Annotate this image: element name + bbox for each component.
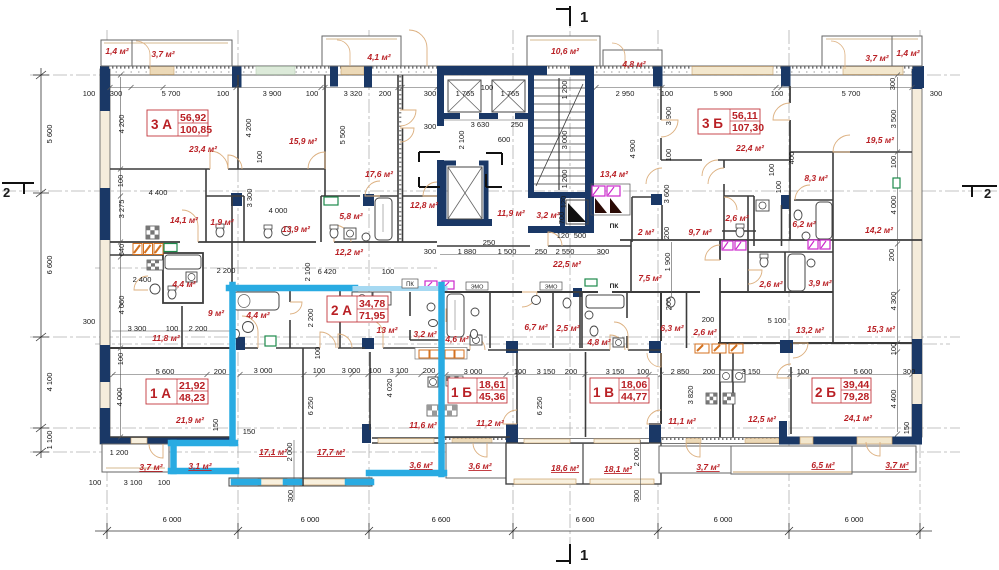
svg-text:700: 700 (557, 212, 566, 225)
svg-text:100: 100 (661, 89, 674, 98)
svg-text:18,1 м²: 18,1 м² (604, 464, 633, 474)
svg-text:ПК: ПК (610, 223, 619, 230)
svg-text:1: 1 (580, 547, 588, 564)
svg-text:3,1 м²: 3,1 м² (188, 461, 212, 471)
svg-text:400: 400 (787, 152, 796, 165)
svg-text:3,7 м²: 3,7 м² (151, 49, 175, 59)
svg-text:200: 200 (565, 367, 578, 376)
svg-text:3,9 м²: 3,9 м² (808, 278, 832, 288)
svg-text:7,5 м²: 7,5 м² (638, 273, 662, 283)
svg-text:3 150: 3 150 (606, 367, 625, 376)
svg-text:56,92: 56,92 (180, 112, 206, 124)
svg-text:11,1 м²: 11,1 м² (668, 416, 697, 426)
svg-text:300: 300 (632, 490, 641, 503)
svg-text:3,7 м²: 3,7 м² (696, 462, 720, 472)
svg-text:2,6 м²: 2,6 м² (758, 279, 783, 289)
svg-text:100: 100 (313, 347, 322, 360)
svg-text:4 060: 4 060 (117, 296, 126, 315)
svg-text:2 400: 2 400 (133, 275, 152, 284)
svg-text:250: 250 (511, 120, 524, 129)
svg-text:1 А: 1 А (150, 386, 171, 401)
svg-text:6 250: 6 250 (535, 397, 544, 416)
svg-text:3 630: 3 630 (471, 120, 490, 129)
svg-text:120: 120 (557, 231, 570, 240)
svg-text:6 000: 6 000 (163, 515, 182, 524)
svg-text:6 000: 6 000 (845, 515, 864, 524)
svg-text:13,2 м²: 13,2 м² (796, 325, 825, 335)
svg-text:3 300: 3 300 (128, 324, 147, 333)
svg-text:45,36: 45,36 (479, 391, 505, 403)
svg-text:2 200: 2 200 (306, 309, 315, 328)
svg-text:1,4 м²: 1,4 м² (896, 48, 920, 58)
svg-text:2 м²: 2 м² (637, 227, 655, 237)
svg-text:100: 100 (166, 324, 179, 333)
svg-text:3 000: 3 000 (464, 367, 483, 376)
svg-text:300: 300 (888, 78, 897, 91)
svg-text:250: 250 (535, 247, 548, 256)
svg-text:300: 300 (424, 122, 437, 131)
svg-text:14,2 м²: 14,2 м² (865, 225, 894, 235)
svg-text:10,6 м²: 10,6 м² (551, 46, 580, 56)
svg-text:100: 100 (797, 367, 810, 376)
svg-text:34,78: 34,78 (359, 298, 385, 310)
svg-text:100: 100 (889, 343, 898, 356)
svg-text:6 000: 6 000 (301, 515, 320, 524)
svg-text:2 000: 2 000 (632, 448, 641, 467)
svg-text:15,9 м²: 15,9 м² (289, 136, 318, 146)
svg-text:100: 100 (637, 367, 650, 376)
svg-text:13,4 м²: 13,4 м² (600, 169, 629, 179)
svg-text:200: 200 (887, 249, 896, 262)
svg-text:2 100: 2 100 (303, 263, 312, 282)
svg-text:2 550: 2 550 (556, 247, 575, 256)
svg-text:100: 100 (116, 353, 125, 366)
svg-text:15,3 м²: 15,3 м² (867, 324, 896, 334)
svg-text:4 000: 4 000 (269, 206, 288, 215)
svg-text:1: 1 (580, 9, 588, 26)
svg-text:100: 100 (382, 267, 395, 276)
svg-text:100: 100 (514, 367, 527, 376)
svg-text:2 200: 2 200 (189, 324, 208, 333)
svg-text:12,2 м²: 12,2 м² (335, 247, 364, 257)
svg-text:1 200: 1 200 (560, 81, 569, 100)
svg-text:100: 100 (767, 164, 776, 177)
svg-text:9 м²: 9 м² (208, 308, 225, 318)
svg-text:6,7 м²: 6,7 м² (524, 322, 548, 332)
svg-text:48,23: 48,23 (179, 392, 205, 404)
svg-text:1 200: 1 200 (560, 170, 569, 189)
svg-text:3,6 м²: 3,6 м² (409, 460, 433, 470)
svg-text:3 320: 3 320 (344, 89, 363, 98)
svg-text:4 300: 4 300 (889, 292, 898, 311)
svg-text:1 900: 1 900 (663, 253, 672, 272)
svg-text:4 400: 4 400 (889, 390, 898, 409)
svg-text:500: 500 (574, 231, 587, 240)
svg-text:300: 300 (424, 89, 437, 98)
svg-text:3 900: 3 900 (664, 107, 673, 126)
svg-text:11,6 м²: 11,6 м² (409, 420, 438, 430)
svg-text:5,8 м²: 5,8 м² (339, 211, 363, 221)
svg-text:6 600: 6 600 (432, 515, 451, 524)
svg-text:5 900: 5 900 (714, 89, 733, 98)
svg-text:5 700: 5 700 (842, 89, 861, 98)
svg-text:3 Б: 3 Б (702, 116, 723, 131)
svg-text:6 420: 6 420 (318, 267, 337, 276)
svg-text:2: 2 (984, 186, 991, 201)
svg-text:100: 100 (664, 149, 673, 162)
svg-text:21,9 м²: 21,9 м² (175, 415, 205, 425)
svg-text:200: 200 (662, 227, 671, 240)
svg-text:3 820: 3 820 (686, 386, 695, 405)
svg-text:2 100: 2 100 (457, 131, 466, 150)
svg-text:18,6 м²: 18,6 м² (551, 463, 580, 473)
svg-text:4,6 м²: 4,6 м² (444, 334, 469, 344)
svg-text:79,28: 79,28 (843, 391, 869, 403)
svg-text:1 500: 1 500 (498, 247, 517, 256)
svg-text:300: 300 (903, 367, 916, 376)
svg-text:3 А: 3 А (151, 117, 172, 132)
svg-text:2 Б: 2 Б (815, 385, 836, 400)
svg-text:11,8 м²: 11,8 м² (152, 333, 181, 343)
svg-text:11,9 м²: 11,9 м² (497, 208, 526, 218)
svg-text:1 880: 1 880 (458, 247, 477, 256)
svg-text:12,5 м²: 12,5 м² (748, 414, 777, 424)
svg-text:1 Б: 1 Б (451, 385, 472, 400)
svg-text:600: 600 (498, 135, 511, 144)
svg-text:4 400: 4 400 (149, 188, 168, 197)
svg-text:2 000: 2 000 (285, 443, 294, 462)
svg-text:6 000: 6 000 (714, 515, 733, 524)
svg-text:4 900: 4 900 (628, 140, 637, 159)
svg-text:3 000: 3 000 (560, 131, 569, 150)
svg-text:100: 100 (89, 478, 102, 487)
svg-text:107,30: 107,30 (732, 122, 764, 134)
svg-text:100: 100 (306, 89, 319, 98)
svg-text:100: 100 (83, 89, 96, 98)
svg-text:100: 100 (158, 478, 171, 487)
svg-text:3,6 м²: 3,6 м² (468, 461, 492, 471)
svg-text:300: 300 (110, 89, 123, 98)
svg-text:22,4 м²: 22,4 м² (735, 143, 765, 153)
svg-text:2 850: 2 850 (671, 367, 690, 376)
svg-text:1 В: 1 В (593, 385, 614, 400)
svg-text:ЭМО: ЭМО (471, 285, 485, 291)
svg-text:1,9 м²: 1,9 м² (210, 217, 234, 227)
svg-text:12,8 м²: 12,8 м² (410, 200, 439, 210)
svg-text:4,4 м²: 4,4 м² (171, 279, 196, 289)
svg-text:200: 200 (702, 315, 715, 324)
svg-text:3 000: 3 000 (342, 366, 361, 375)
svg-text:3,7 м²: 3,7 м² (139, 462, 163, 472)
svg-text:5 100: 5 100 (768, 316, 787, 325)
svg-text:1 765: 1 765 (456, 89, 475, 98)
svg-text:4 000: 4 000 (115, 388, 124, 407)
svg-text:17,1 м²: 17,1 м² (259, 447, 288, 457)
svg-text:8,3 м²: 8,3 м² (804, 173, 828, 183)
svg-text:300: 300 (286, 490, 295, 503)
svg-text:18,06: 18,06 (621, 379, 647, 391)
svg-text:3 150: 3 150 (742, 367, 761, 376)
svg-text:3 900: 3 900 (263, 89, 282, 98)
svg-text:300: 300 (83, 317, 96, 326)
svg-text:56,11: 56,11 (732, 110, 758, 122)
svg-text:3 600: 3 600 (662, 185, 671, 204)
svg-text:4 000: 4 000 (889, 196, 898, 215)
svg-text:3 150: 3 150 (537, 367, 556, 376)
svg-text:150: 150 (211, 419, 220, 432)
svg-text:100: 100 (313, 366, 326, 375)
svg-text:6 600: 6 600 (576, 515, 595, 524)
svg-text:4,4 м²: 4,4 м² (245, 310, 270, 320)
svg-text:23,4 м²: 23,4 м² (188, 144, 218, 154)
svg-text:14,1 м²: 14,1 м² (170, 215, 199, 225)
svg-text:5 700: 5 700 (162, 89, 181, 98)
svg-text:200: 200 (214, 367, 227, 376)
svg-text:3 100: 3 100 (390, 366, 409, 375)
svg-text:6 250: 6 250 (306, 397, 315, 416)
svg-text:300: 300 (424, 247, 437, 256)
svg-text:2,6 м²: 2,6 м² (692, 327, 717, 337)
svg-text:200: 200 (664, 298, 673, 311)
svg-text:17,7 м²: 17,7 м² (317, 447, 346, 457)
svg-text:3 500: 3 500 (889, 110, 898, 129)
svg-text:3,7 м²: 3,7 м² (885, 460, 909, 470)
svg-text:ПК: ПК (610, 283, 619, 290)
svg-text:21,92: 21,92 (179, 380, 205, 392)
svg-text:100: 100 (255, 151, 264, 164)
svg-text:1 765: 1 765 (501, 89, 520, 98)
svg-text:100,85: 100,85 (180, 124, 212, 136)
svg-text:6,2 м²: 6,2 м² (792, 219, 816, 229)
svg-text:100: 100 (116, 175, 125, 188)
svg-text:ЭМО: ЭМО (545, 285, 559, 291)
svg-text:3 000: 3 000 (254, 366, 273, 375)
svg-text:17,6 м²: 17,6 м² (365, 169, 394, 179)
svg-text:13 м²: 13 м² (377, 325, 399, 335)
svg-text:3 300: 3 300 (245, 189, 254, 208)
svg-text:9,7 м²: 9,7 м² (688, 227, 712, 237)
svg-text:1,4 м²: 1,4 м² (105, 46, 129, 56)
svg-text:2 А: 2 А (331, 303, 352, 318)
svg-text:39,44: 39,44 (843, 379, 869, 391)
svg-text:100: 100 (217, 89, 230, 98)
svg-text:4 200: 4 200 (244, 119, 253, 138)
svg-text:100: 100 (481, 83, 494, 92)
svg-text:2 200: 2 200 (217, 266, 236, 275)
svg-text:100: 100 (889, 156, 898, 169)
svg-text:4,1 м²: 4,1 м² (366, 52, 391, 62)
svg-text:3 100: 3 100 (124, 478, 143, 487)
svg-text:300: 300 (930, 89, 943, 98)
svg-text:2 950: 2 950 (616, 89, 635, 98)
svg-text:5 600: 5 600 (854, 367, 873, 376)
svg-text:4 200: 4 200 (117, 115, 126, 134)
svg-text:6,3 м²: 6,3 м² (660, 323, 684, 333)
svg-text:22,5 м²: 22,5 м² (552, 259, 582, 269)
svg-text:200: 200 (703, 367, 716, 376)
svg-text:71,95: 71,95 (359, 310, 385, 322)
svg-text:3,2 м²: 3,2 м² (413, 329, 437, 339)
svg-text:300: 300 (597, 247, 610, 256)
svg-text:ПК: ПК (406, 282, 414, 288)
svg-text:2,5 м²: 2,5 м² (555, 323, 580, 333)
svg-text:5 600: 5 600 (45, 125, 54, 144)
svg-text:3,7 м²: 3,7 м² (865, 53, 889, 63)
svg-text:6 600: 6 600 (45, 256, 54, 275)
svg-text:18,61: 18,61 (479, 379, 505, 391)
svg-text:4 100: 4 100 (45, 373, 54, 392)
svg-text:1 100: 1 100 (45, 431, 54, 450)
svg-text:44,77: 44,77 (621, 391, 647, 403)
svg-text:19,5 м²: 19,5 м² (866, 135, 895, 145)
svg-text:150: 150 (243, 427, 256, 436)
svg-text:2: 2 (3, 185, 10, 200)
svg-text:1 200: 1 200 (110, 448, 129, 457)
svg-text:250: 250 (483, 238, 496, 247)
svg-text:100: 100 (369, 366, 382, 375)
svg-text:4,8 м²: 4,8 м² (621, 59, 646, 69)
svg-text:2,6 м²: 2,6 м² (724, 213, 749, 223)
svg-text:120: 120 (559, 196, 568, 209)
svg-text:640: 640 (117, 244, 126, 257)
svg-text:150: 150 (902, 422, 911, 435)
svg-text:24,1 м²: 24,1 м² (843, 413, 873, 423)
svg-text:3 275: 3 275 (117, 200, 126, 219)
svg-text:4 020: 4 020 (385, 379, 394, 398)
svg-text:100: 100 (774, 181, 783, 194)
svg-text:200: 200 (379, 89, 392, 98)
svg-text:200: 200 (423, 366, 436, 375)
svg-text:5 600: 5 600 (156, 367, 175, 376)
svg-text:11,2 м²: 11,2 м² (476, 418, 505, 428)
svg-text:4,8 м²: 4,8 м² (586, 337, 611, 347)
svg-text:100: 100 (771, 89, 784, 98)
svg-text:5 500: 5 500 (338, 126, 347, 145)
svg-text:6,5 м²: 6,5 м² (811, 460, 835, 470)
svg-text:13,9 м²: 13,9 м² (282, 224, 311, 234)
